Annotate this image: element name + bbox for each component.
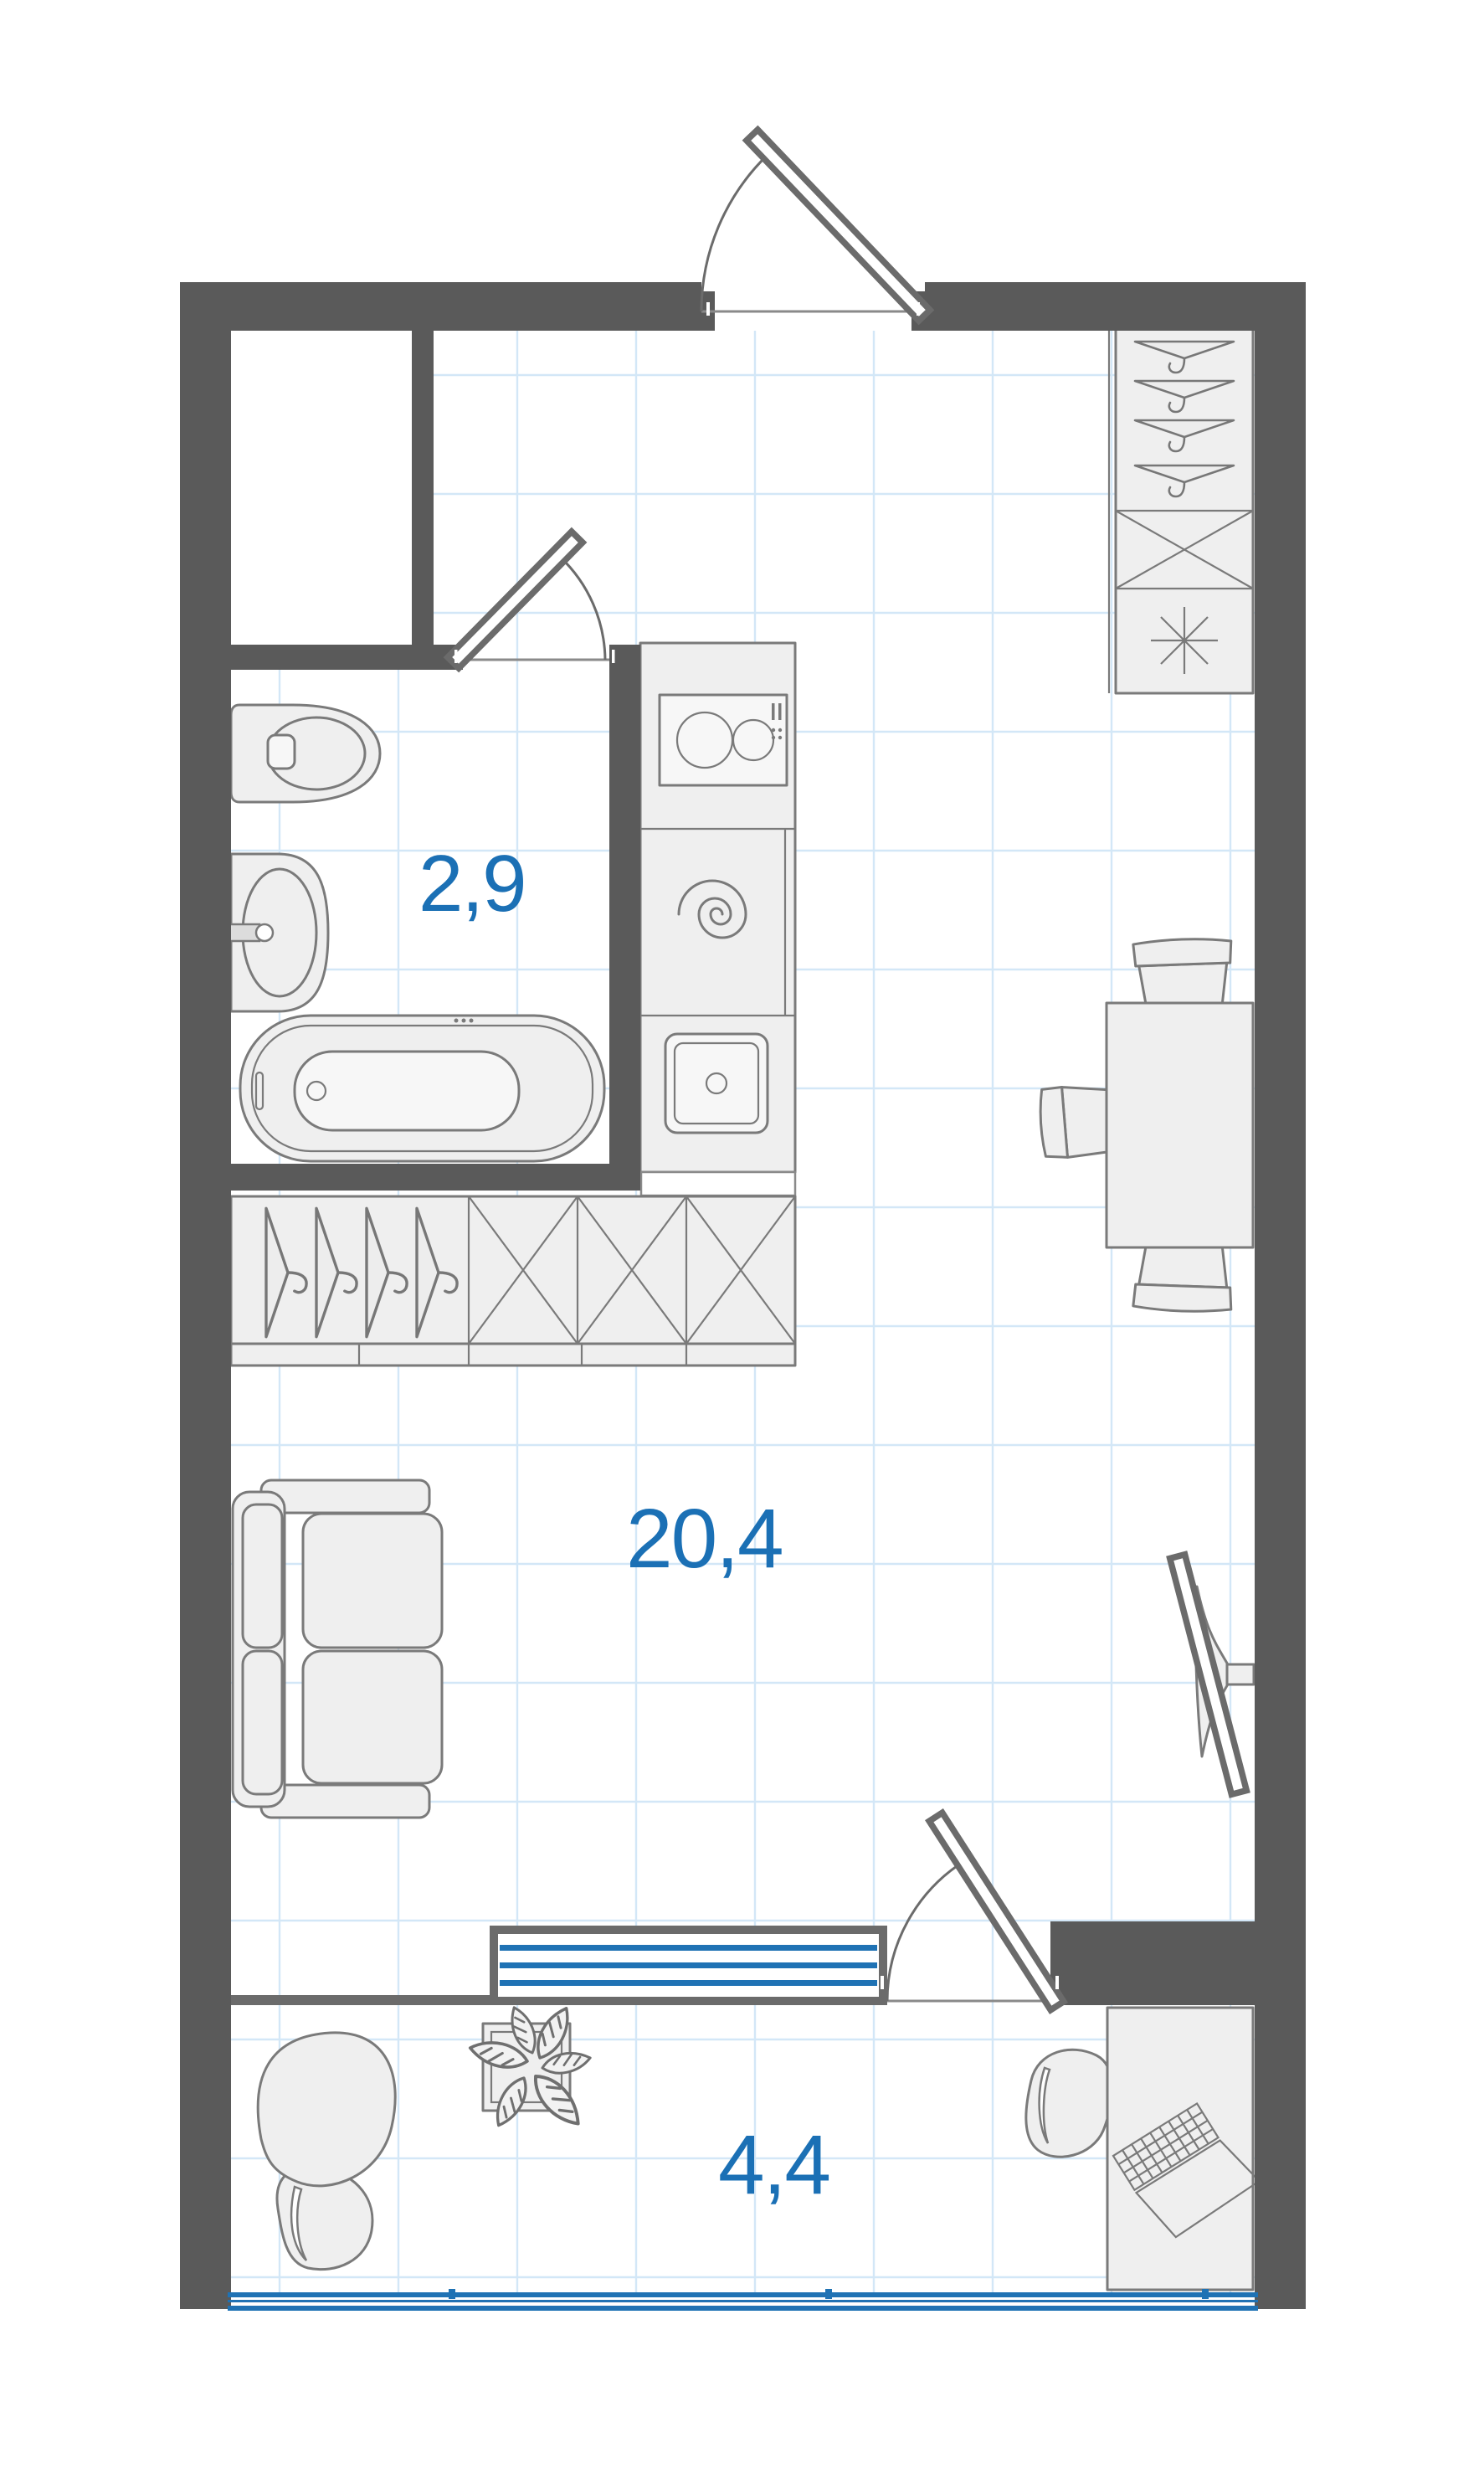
kitchen-sink-icon [665, 1034, 768, 1133]
wall-bathroom-bottom [231, 1164, 640, 1191]
wardrobe [231, 1196, 795, 1366]
shaft-niche [231, 331, 412, 645]
chair [1133, 1244, 1234, 1313]
wall-left [180, 282, 231, 2309]
entrance-door [701, 141, 925, 316]
bathroom-area-label: 2,9 [418, 844, 525, 924]
balcony-sill-line [231, 1995, 490, 2005]
wall-kitchen-divider [609, 645, 640, 1191]
wall-bathroom-top [180, 645, 463, 670]
snowflake-fridge-icon [1151, 607, 1218, 674]
kitchen-counter [640, 643, 795, 1196]
sofa [233, 1480, 442, 1818]
wall-balcony-stub [1050, 1921, 1255, 2005]
hallway-closet [1109, 316, 1253, 693]
wall-right [1255, 282, 1306, 2309]
floor-plan: 2,9 20,4 4,4 [0, 0, 1484, 2479]
desk [1107, 2008, 1261, 2290]
bathtub [240, 1016, 604, 1161]
wall-shaft [412, 331, 434, 645]
chair [1040, 1086, 1109, 1159]
window [490, 1926, 887, 2005]
chair [1133, 938, 1234, 1006]
wall-top-right [925, 282, 1306, 331]
toilet [231, 705, 380, 802]
counter-end-panel [641, 1172, 795, 1196]
balcony-area-label: 4,4 [718, 2123, 829, 2207]
living-room-area-label: 20,4 [626, 1497, 783, 1581]
stove-burners-icon [660, 695, 787, 785]
bathroom-sink [216, 854, 328, 1011]
wall-top-left [180, 282, 701, 331]
floor-plan-drawing [0, 0, 1484, 2479]
